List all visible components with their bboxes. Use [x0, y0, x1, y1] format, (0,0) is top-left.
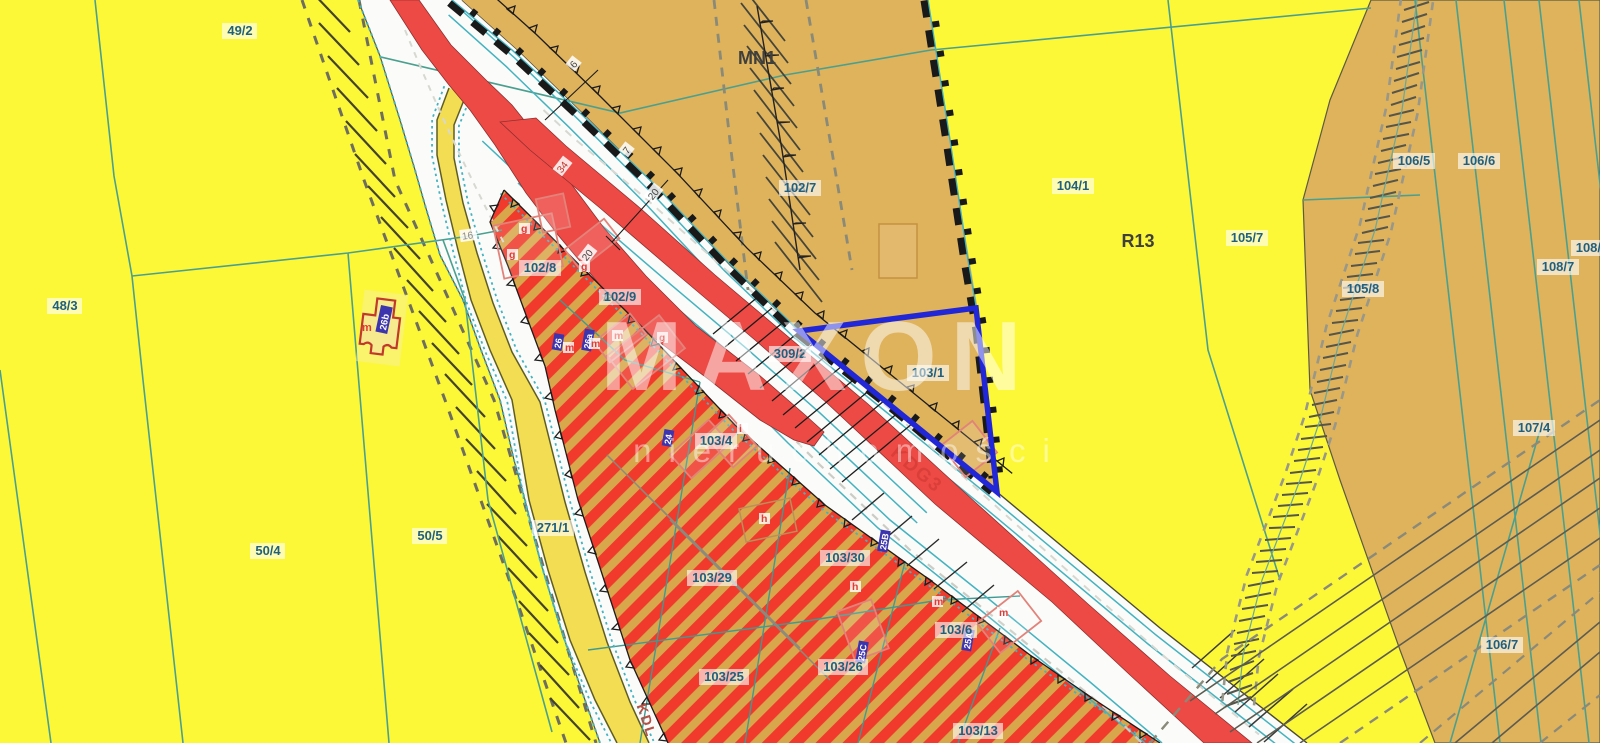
svg-text:104/1: 104/1 [1057, 178, 1090, 193]
svg-text:h: h [852, 581, 858, 593]
svg-text:50/5: 50/5 [417, 528, 442, 543]
svg-text:106/6: 106/6 [1463, 153, 1496, 168]
svg-text:103/26: 103/26 [823, 659, 863, 674]
svg-text:g: g [521, 223, 527, 235]
svg-text:h: h [761, 513, 767, 525]
svg-text:16: 16 [461, 230, 474, 243]
svg-text:m: m [934, 596, 943, 608]
svg-text:g: g [509, 249, 515, 261]
svg-text:50/4: 50/4 [255, 543, 281, 558]
svg-text:R13: R13 [1121, 231, 1154, 251]
svg-text:48/3: 48/3 [52, 298, 77, 313]
svg-text:108/7: 108/7 [1542, 259, 1575, 274]
svg-text:m: m [565, 342, 574, 354]
svg-text:107/4: 107/4 [1518, 420, 1551, 435]
svg-text:26: 26 [552, 337, 564, 349]
svg-text:49/2: 49/2 [227, 23, 252, 38]
svg-text:MAXON: MAXON [601, 301, 1036, 411]
svg-text:103/13: 103/13 [958, 723, 998, 738]
svg-text:nieruchomości: nieruchomości [633, 432, 1067, 469]
svg-text:271/1: 271/1 [537, 520, 570, 535]
svg-text:105/8: 105/8 [1347, 281, 1380, 296]
svg-text:103/6: 103/6 [940, 622, 973, 637]
svg-text:108/6: 108/6 [1576, 240, 1600, 255]
svg-text:103/29: 103/29 [692, 570, 732, 585]
svg-text:102/8: 102/8 [524, 260, 557, 275]
svg-text:106/7: 106/7 [1486, 637, 1519, 652]
svg-text:103/30: 103/30 [825, 550, 865, 565]
svg-text:103/25: 103/25 [704, 669, 744, 684]
svg-text:102/7: 102/7 [784, 180, 817, 195]
svg-text:106/5: 106/5 [1398, 153, 1431, 168]
svg-text:m: m [999, 607, 1008, 619]
svg-text:m: m [591, 338, 600, 350]
svg-text:105/7: 105/7 [1231, 230, 1264, 245]
svg-text:MN1: MN1 [738, 48, 776, 68]
svg-text:m: m [362, 322, 372, 334]
